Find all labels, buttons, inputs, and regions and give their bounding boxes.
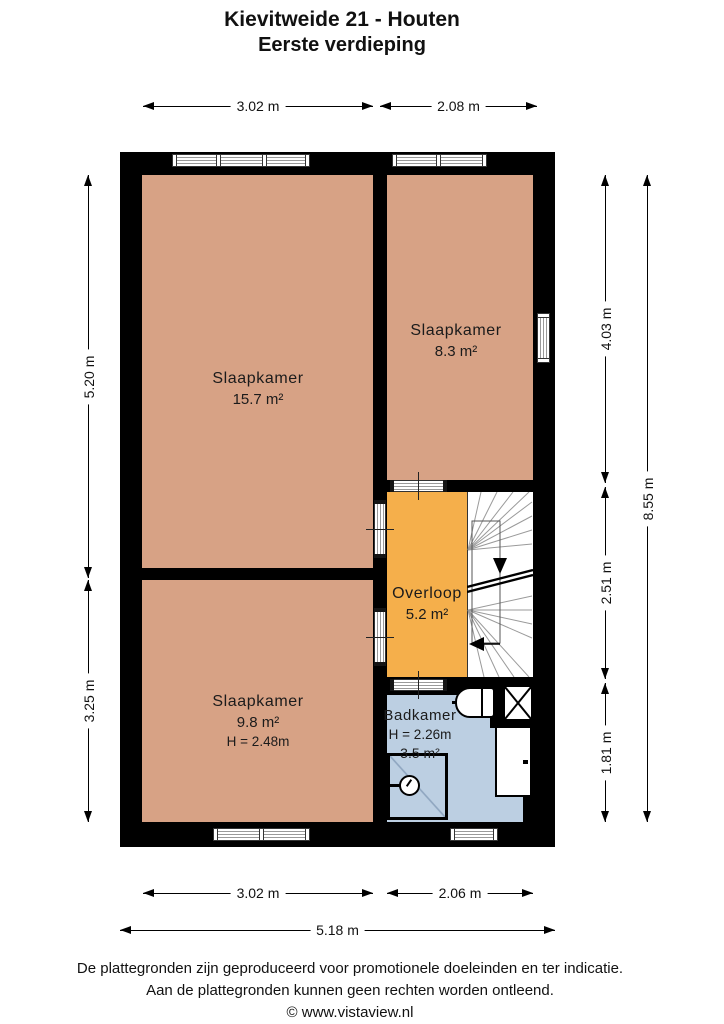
disclaimer: De plattegronden zijn geproduceerd voor … xyxy=(0,958,700,1024)
page-subtitle: Eerste verdieping xyxy=(0,34,684,57)
disclaimer-line-1: De plattegronden zijn geproduceerd voor … xyxy=(0,958,700,980)
dim-right-total: 8.55 m xyxy=(641,175,654,822)
wall-patch-corner xyxy=(523,795,533,822)
dim-bottom-right: 2.06 m xyxy=(387,887,533,900)
dim-right-upper: 4.03 m xyxy=(599,175,612,483)
duct-shaft xyxy=(502,684,534,722)
copyright: © www.vistaview.nl xyxy=(0,1002,700,1024)
disclaimer-line-2: Aan de plattegronden kunnen geen rechten… xyxy=(0,980,700,1002)
room-label-badkamer: Badkamer H = 2.26m 3.5 m² xyxy=(350,706,490,763)
dim-top-right: 2.08 m xyxy=(380,100,537,113)
window-bathroom xyxy=(450,828,498,841)
dim-left-lower: 3.25 m xyxy=(82,580,95,822)
bathroom-door-leaf xyxy=(495,726,532,797)
room-label-slaapkamer-large: Slaapkamer 15.7 m² xyxy=(158,368,358,410)
door-handle xyxy=(523,760,528,764)
window-top-left xyxy=(172,154,310,167)
room-label-overloop: Overloop 5.2 m² xyxy=(352,583,502,625)
page-title: Kievitweide 21 - Houten xyxy=(0,8,684,32)
room-label-slaapkamer-right: Slaapkamer 8.3 m² xyxy=(356,320,556,362)
room-label-slaapkamer-small: Slaapkamer 9.8 m² H = 2.48m xyxy=(158,691,358,751)
floorplan-page: Kievitweide 21 - Houten Eerste verdiepin… xyxy=(0,0,724,1024)
dim-right-middle: 2.51 m xyxy=(599,487,612,679)
dim-right-lower: 1.81 m xyxy=(599,683,612,822)
dim-bottom-left: 3.02 m xyxy=(143,887,373,900)
dim-bottom-total: 5.18 m xyxy=(120,924,555,937)
dim-left-upper: 5.20 m xyxy=(82,175,95,578)
dim-top-left: 3.02 m xyxy=(143,100,373,113)
